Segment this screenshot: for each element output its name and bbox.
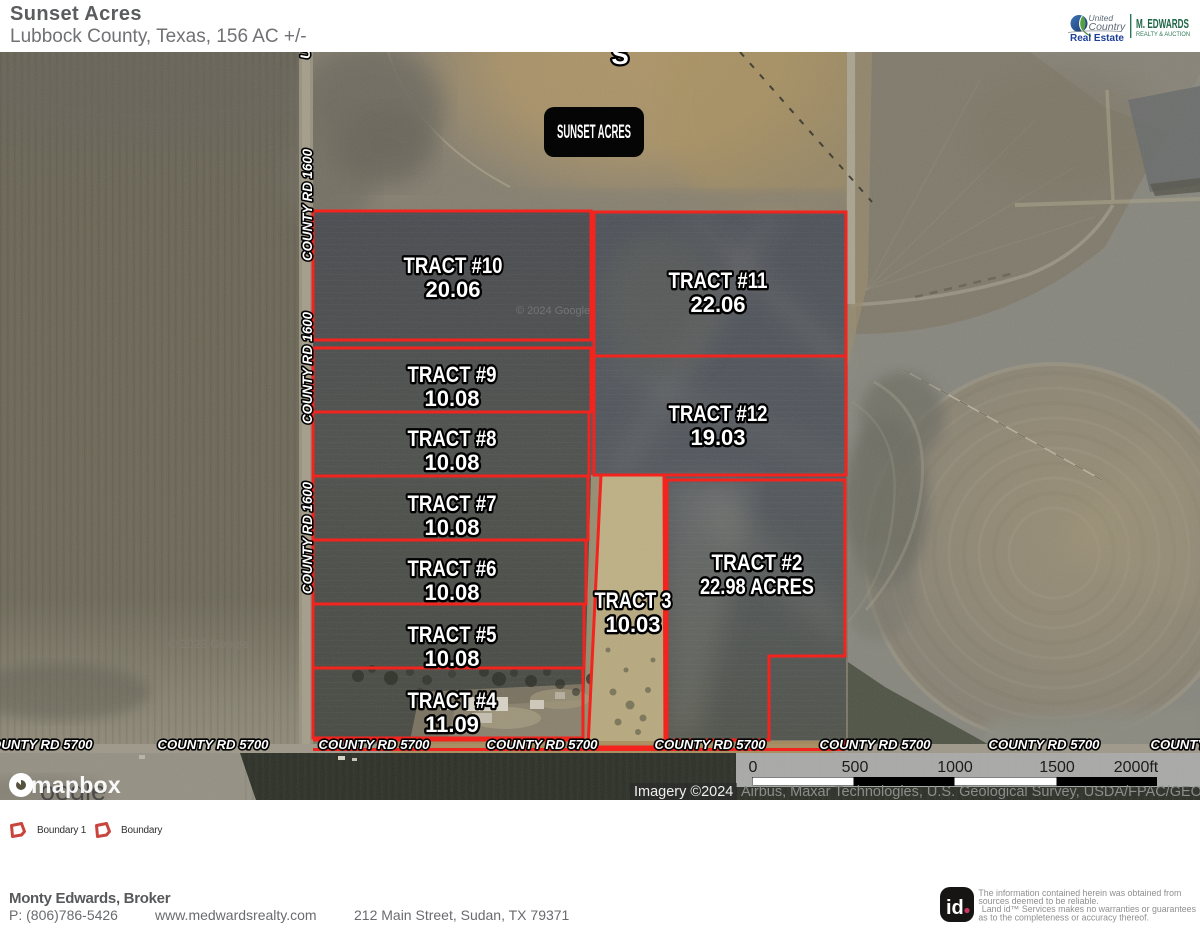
svg-text:TRACT #12: TRACT #12 [669, 401, 768, 426]
svg-text:TRACT #2: TRACT #2 [712, 550, 803, 575]
svg-text:TRACT #7: TRACT #7 [408, 491, 497, 516]
svg-text:10.08: 10.08 [424, 515, 479, 540]
svg-text:id: id [946, 897, 964, 919]
svg-text:22.06: 22.06 [690, 292, 745, 317]
svg-text:TRACT #8: TRACT #8 [408, 426, 497, 451]
svg-text:COUNTY RD 1600: COUNTY RD 1600 [300, 312, 315, 424]
svg-text:TRACT 3: TRACT 3 [595, 588, 672, 613]
svg-text:TRACT #6: TRACT #6 [408, 556, 497, 581]
svg-text:11.09: 11.09 [425, 712, 479, 737]
svg-text:10.08: 10.08 [424, 646, 479, 671]
svg-text:as to the completeness or accu: as to the completeness or accuracy there… [978, 913, 1149, 923]
svg-text:COUNTY RD 5700: COUNTY RD 5700 [319, 737, 431, 752]
svg-text:20.06: 20.06 [425, 277, 480, 302]
svg-text:Real Estate: Real Estate [1070, 32, 1124, 44]
svg-text:500: 500 [842, 759, 869, 776]
svg-text:COUNTY RD 5700: COUNTY RD 5700 [820, 737, 932, 752]
svg-text:COUNTY RD 5700: COUNTY RD 5700 [655, 737, 767, 752]
svg-text:10.08: 10.08 [424, 450, 479, 475]
svg-text:2000ft: 2000ft [1114, 759, 1159, 776]
svg-text:TRACT #9: TRACT #9 [408, 362, 497, 387]
svg-text:TRACT #10: TRACT #10 [404, 253, 503, 278]
svg-text:19.03: 19.03 [690, 425, 745, 450]
svg-text:REALTY & AUCTION: REALTY & AUCTION [1136, 31, 1190, 38]
svg-text:COUNTY RD 5700: COUNTY RD 5700 [158, 737, 270, 752]
svg-text:COUNTY RD 1600: COUNTY RD 1600 [300, 149, 315, 261]
svg-text:COUNTY RD 1600: COUNTY RD 1600 [300, 482, 315, 594]
svg-text:COUNTY RD 5700: COUNTY RD 5700 [0, 737, 93, 752]
svg-text:SUNSET ACRES: SUNSET ACRES [557, 122, 631, 143]
svg-text:mapbox: mapbox [31, 772, 121, 798]
svg-text:TRACT #4: TRACT #4 [408, 688, 498, 713]
svg-text:10.08: 10.08 [424, 386, 479, 411]
svg-text:Imagery ©2024: Imagery ©2024 [634, 784, 733, 800]
svg-text:22.98 ACRES: 22.98 ACRES [700, 574, 814, 599]
svg-text:COUNTY RD 5700: COUNTY RD 5700 [1151, 737, 1200, 752]
svg-text:M. EDWARDS: M. EDWARDS [1136, 17, 1189, 31]
svg-text:10.03: 10.03 [605, 612, 660, 637]
svg-text:S: S [611, 52, 628, 70]
svg-text:TRACT #11: TRACT #11 [669, 268, 768, 293]
svg-text:Airbus, Maxar Technologies, U.: Airbus, Maxar Technologies, U.S. Geologi… [741, 784, 1200, 800]
svg-text:0: 0 [749, 759, 758, 776]
svg-text:U: U [298, 52, 313, 59]
svg-text:1500: 1500 [1039, 759, 1075, 776]
svg-text:COUNTY RD 5700: COUNTY RD 5700 [487, 737, 599, 752]
svg-text:COUNTY RD 5700: COUNTY RD 5700 [989, 737, 1101, 752]
svg-text:TRACT #5: TRACT #5 [408, 622, 497, 647]
svg-text:10.08: 10.08 [424, 580, 479, 605]
svg-text:1000: 1000 [937, 759, 973, 776]
